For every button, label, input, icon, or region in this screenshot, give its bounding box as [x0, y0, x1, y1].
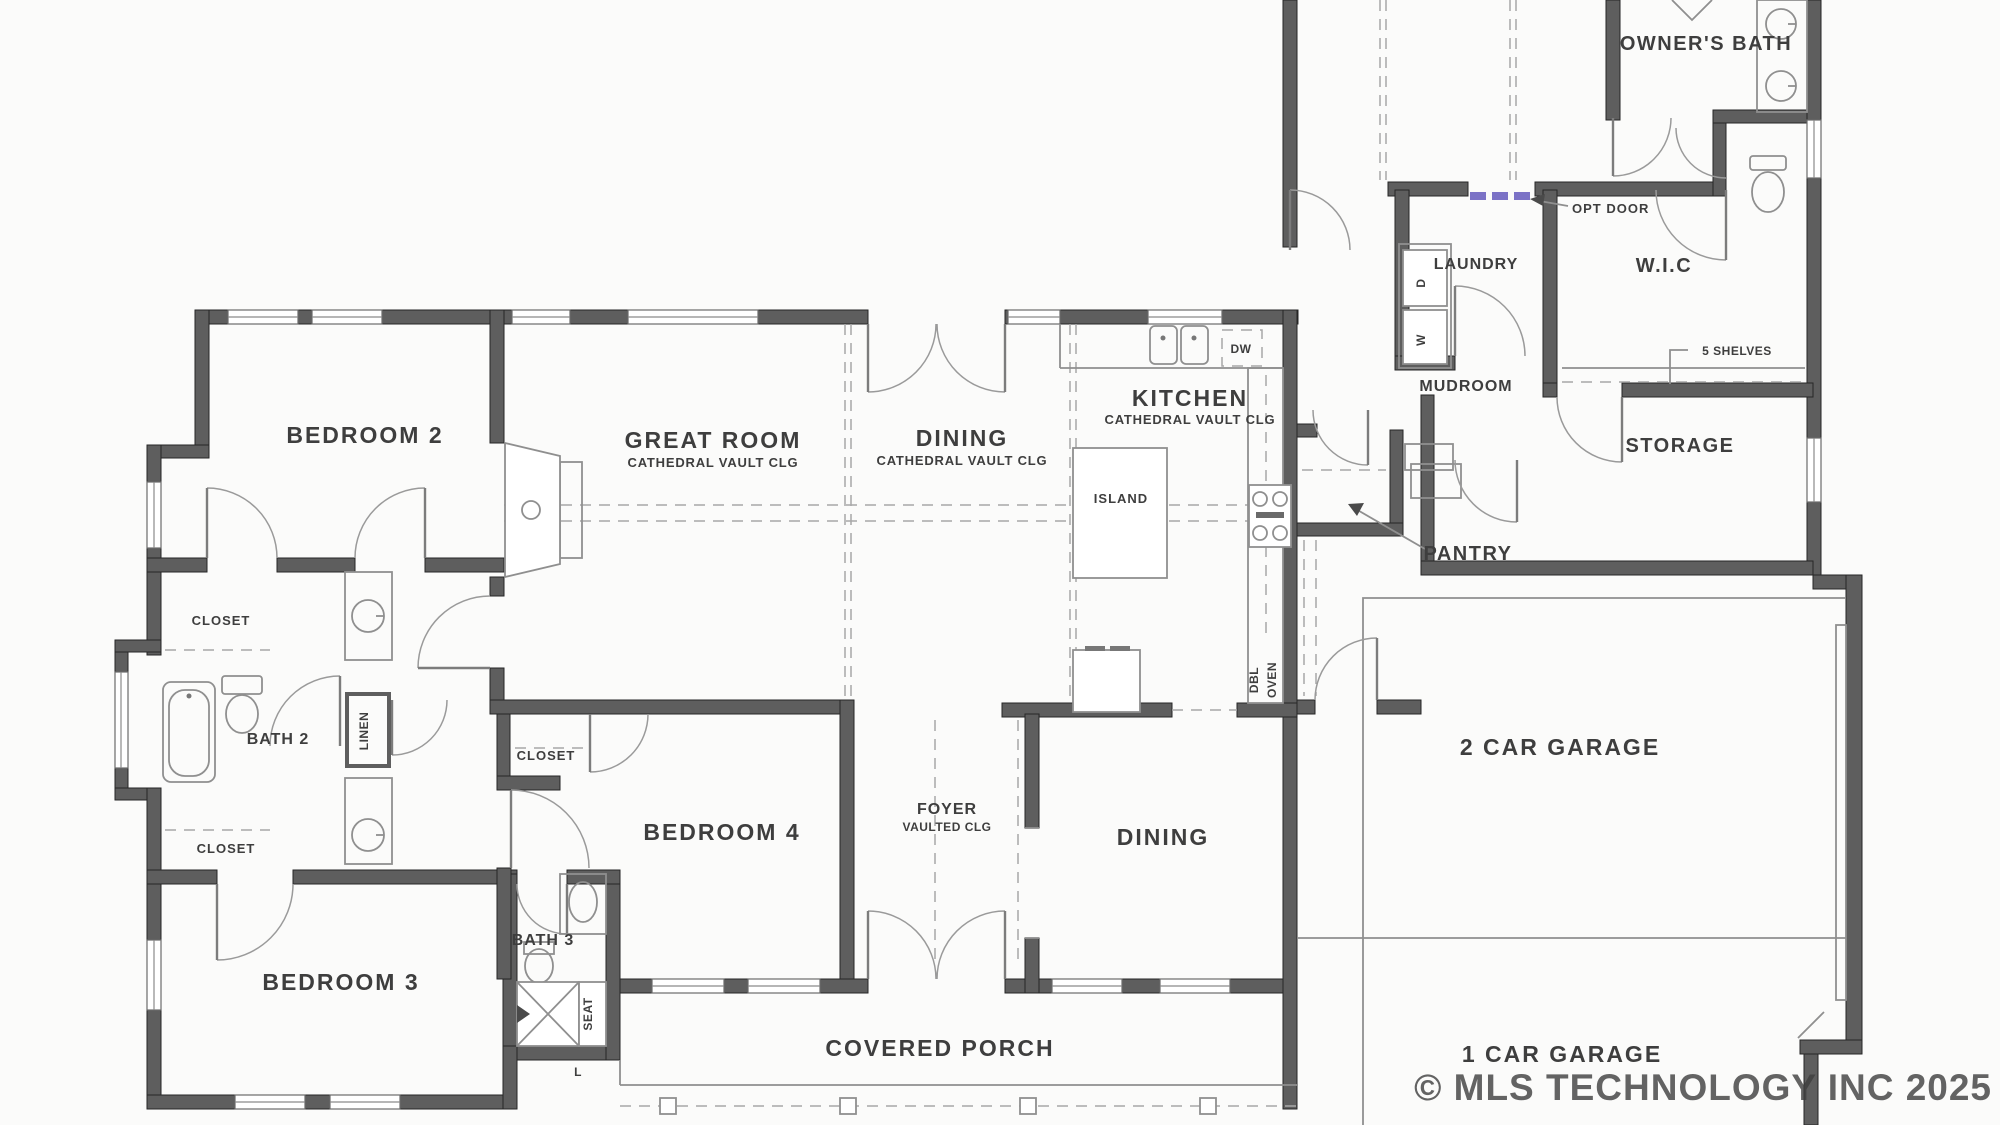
label-foyer: FOYER — [917, 801, 977, 818]
label-closet-upper: CLOSET — [192, 613, 251, 628]
label-bedroom-3: BEDROOM 3 — [262, 969, 419, 995]
ceiling-dashed-lines — [165, 0, 1805, 1106]
fixtures — [163, 0, 1807, 1114]
label-closet-bed4: CLOSET — [517, 748, 576, 763]
kitchen-island — [1073, 448, 1167, 578]
label-bedroom-2: BEDROOM 2 — [286, 422, 443, 448]
owners-bath-fixtures — [1672, 0, 1807, 212]
floor-plan-drawing: BEDROOM 2 GREAT ROOM CATHEDRAL VAULT CLG… — [0, 0, 2000, 1125]
vanity-upper — [345, 572, 392, 660]
label-wic: W.I.C — [1636, 255, 1692, 277]
label-dining-top-ceiling: CATHEDRAL VAULT CLG — [877, 453, 1048, 468]
label-dbl-oven-1: DBL — [1247, 667, 1261, 693]
label-opt-door: OPT DOOR — [1572, 201, 1649, 216]
label-dishwasher: DW — [1231, 342, 1252, 356]
label-kitchen-ceiling: CATHEDRAL VAULT CLG — [1105, 412, 1276, 427]
label-bath-3: BATH 3 — [512, 932, 575, 949]
label-laundry: LAUNDRY — [1434, 256, 1519, 273]
label-washer: W — [1414, 334, 1428, 346]
label-dryer: D — [1414, 278, 1428, 287]
label-5-shelves: 5 SHELVES — [1702, 344, 1772, 358]
cooktop — [1249, 485, 1291, 547]
label-closet-lower: CLOSET — [197, 841, 256, 856]
label-dbl-oven-2: OVEN — [1265, 662, 1279, 698]
label-island: ISLAND — [1094, 491, 1148, 506]
label-great-room: GREAT ROOM — [625, 427, 802, 453]
vanity-lower — [345, 778, 392, 864]
bathtub — [163, 682, 215, 782]
leader-lines — [1348, 194, 1568, 549]
label-pantry: PANTRY — [1424, 543, 1513, 565]
label-covered-porch: COVERED PORCH — [825, 1035, 1054, 1061]
toilet-bath2 — [222, 676, 262, 733]
opt-door-marks — [1470, 192, 1530, 200]
windows — [115, 120, 1821, 1109]
label-storage: STORAGE — [1625, 435, 1734, 457]
kitchen-sink — [1150, 326, 1208, 364]
label-seat: SEAT — [581, 997, 595, 1030]
label-owners-bath: OWNER'S BATH — [1620, 33, 1792, 55]
label-kitchen: KITCHEN — [1132, 385, 1248, 411]
label-l-marker: L — [574, 1065, 582, 1079]
label-2-car-garage: 2 CAR GARAGE — [1460, 734, 1660, 760]
label-bath-2: BATH 2 — [247, 731, 310, 748]
label-1-car-garage: 1 CAR GARAGE — [1462, 1041, 1662, 1067]
label-dining-front: DINING — [1117, 824, 1210, 850]
label-great-room-ceiling: CATHEDRAL VAULT CLG — [628, 455, 799, 470]
label-foyer-ceiling: VAULTED CLG — [902, 820, 991, 834]
fireplace — [505, 443, 582, 577]
mls-watermark: © MLS TECHNOLOGY INC 2025 — [1414, 1067, 1992, 1108]
label-dining-top: DINING — [916, 425, 1009, 451]
refrigerator — [1073, 646, 1140, 712]
floor-plan-page: BEDROOM 2 GREAT ROOM CATHEDRAL VAULT CLG… — [0, 0, 2000, 1125]
label-mudroom: MUDROOM — [1419, 378, 1512, 395]
label-linen: LINEN — [357, 712, 371, 751]
walls — [115, 0, 1862, 1125]
label-bedroom-4: BEDROOM 4 — [643, 819, 800, 845]
